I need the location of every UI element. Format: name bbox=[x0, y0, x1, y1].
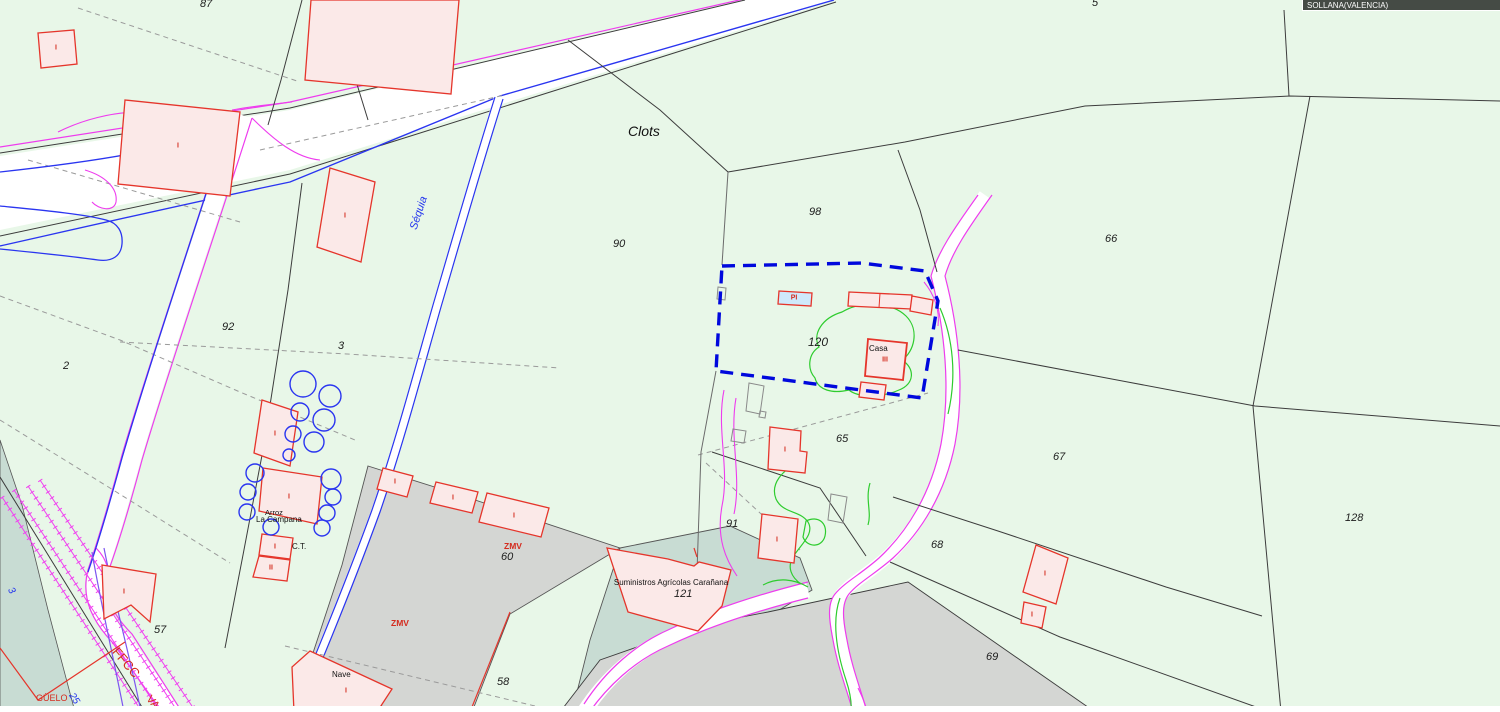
place-label-suministros: Suministros Agrícolas Carañana bbox=[596, 579, 746, 587]
parcel-number: 91 bbox=[726, 519, 738, 530]
building-mark: I bbox=[344, 213, 346, 220]
building-mark: I bbox=[776, 537, 778, 544]
building-mark: PI bbox=[791, 295, 798, 302]
place-label-ct: C.T. bbox=[292, 543, 306, 551]
building-mark: I bbox=[1031, 612, 1033, 619]
building-mark: I bbox=[513, 513, 515, 520]
place-label-guelo: GÜELO bbox=[36, 694, 68, 703]
parcel-number: 66 bbox=[1105, 234, 1117, 245]
building-mark: I bbox=[1044, 571, 1046, 578]
parcel-number: 67 bbox=[1053, 452, 1065, 463]
building-mark: I bbox=[288, 494, 290, 501]
building-mark: III bbox=[882, 357, 888, 364]
place-label-la-campana: La Campana bbox=[256, 516, 302, 524]
building-mark: I bbox=[274, 431, 276, 438]
building-mark: I bbox=[177, 143, 179, 150]
building-mark: I bbox=[55, 45, 57, 52]
parcel-number: 90 bbox=[613, 239, 625, 250]
parcel-number: 58 bbox=[497, 677, 509, 688]
place-label-casa: Casa bbox=[869, 345, 888, 353]
parcel-number: 3 bbox=[338, 341, 344, 352]
parcel-number: 121 bbox=[674, 589, 692, 600]
parcel-number: 2 bbox=[63, 361, 69, 372]
selected-parcel-outline[interactable] bbox=[716, 263, 938, 398]
parcel-number: 60 bbox=[501, 552, 513, 563]
parcel-number: 57 bbox=[154, 625, 166, 636]
parcel-number: 87 bbox=[200, 0, 212, 10]
building-mark: I bbox=[394, 479, 396, 486]
parcel-number: 68 bbox=[931, 540, 943, 551]
cadastral-map-viewport: 87 5 2 92 3 90 98 66 120 65 67 128 91 68… bbox=[0, 0, 1500, 712]
parcel-number: 5 bbox=[1092, 0, 1098, 9]
building-mark: I bbox=[274, 544, 276, 551]
place-label-nave: Nave bbox=[332, 671, 351, 679]
parcel-number: 98 bbox=[809, 207, 821, 218]
parcel-number: 65 bbox=[836, 434, 848, 445]
building-mark: I bbox=[784, 447, 786, 454]
zone-label-zmv: ZMV bbox=[504, 542, 522, 551]
building-mark: I bbox=[123, 589, 125, 596]
parcel-number: 128 bbox=[1345, 513, 1363, 524]
parcel-number: 69 bbox=[986, 652, 998, 663]
map-canvas bbox=[0, 0, 1500, 712]
parcel-number-selected[interactable]: 120 bbox=[808, 336, 828, 348]
building-mark: I bbox=[345, 688, 347, 695]
building-mark: I bbox=[452, 495, 454, 502]
building-mark: II bbox=[269, 565, 273, 572]
municipality-title-bar: SOLLANA(VALENCIA) bbox=[1302, 0, 1500, 11]
zone-label-zmv: ZMV bbox=[391, 619, 409, 628]
bottom-margin-strip bbox=[0, 706, 1500, 712]
place-label-clots: Clots bbox=[628, 124, 660, 138]
parcel-number: 92 bbox=[222, 322, 234, 333]
